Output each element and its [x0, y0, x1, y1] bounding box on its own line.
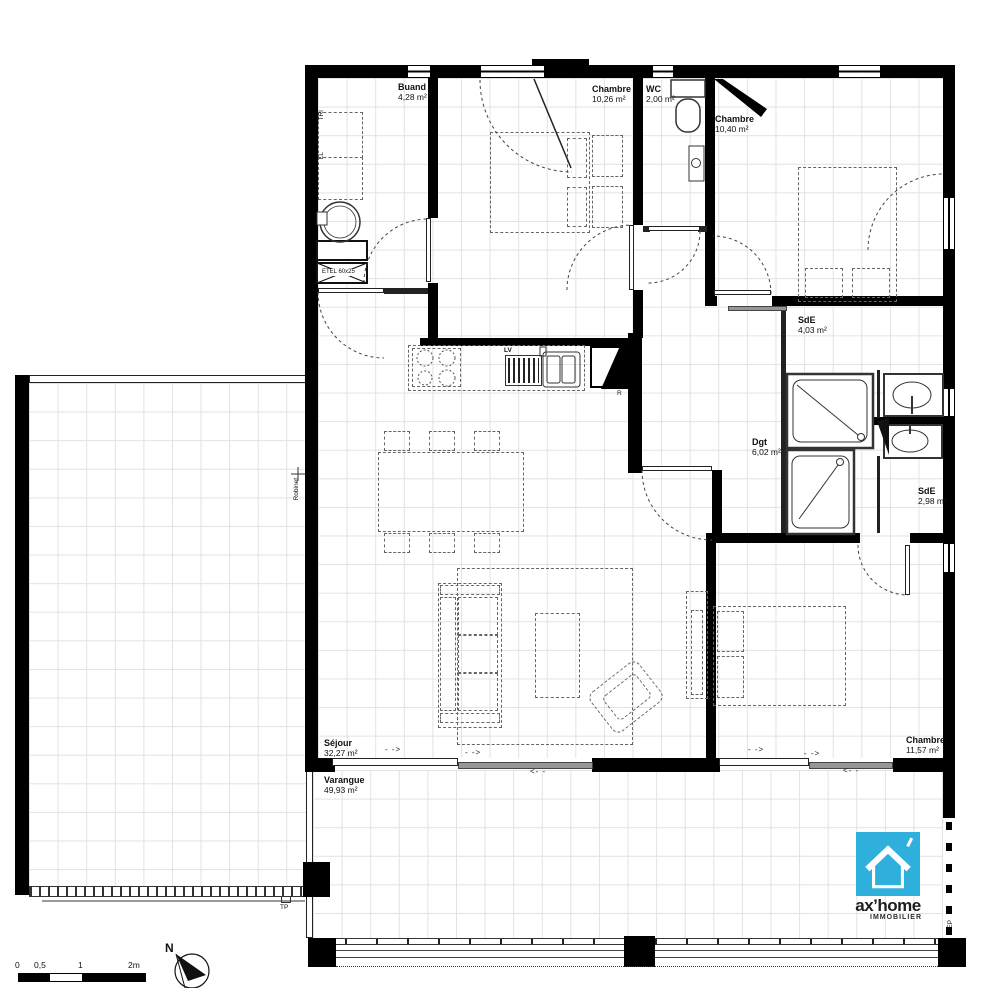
door-arc-wc: [648, 231, 700, 283]
room-area: 4,03 m²: [798, 325, 827, 335]
room-name: Buand: [398, 82, 427, 92]
logo-subtitle: IMMOBILIER: [850, 914, 922, 921]
plan-overlay: [0, 0, 1000, 988]
slide-arrow-sejour-3: <- -: [530, 768, 546, 776]
logo-house-icon: [856, 832, 920, 896]
burner-3: [418, 371, 432, 385]
kitchen-sink-bowl-2: [562, 356, 575, 383]
door-arc-chambre1: [567, 225, 632, 290]
lv-label: LV: [504, 347, 512, 354]
compass-needle: [176, 954, 206, 981]
room-name: Séjour: [324, 738, 358, 748]
slide-arrow-chambre3-1: - ->: [748, 746, 764, 754]
room-area: 6,02 m²: [752, 447, 781, 457]
room-name: WC: [646, 84, 675, 94]
slide-arrow-chambre3-3: <- -: [843, 767, 859, 775]
door-arc-chambre2-window: [868, 174, 944, 250]
door-arc-buand-bottom: [318, 292, 384, 358]
logo-body: [874, 865, 903, 887]
entry-door-leaf: [714, 79, 767, 117]
room-label-wc: WC 2,00 m²: [646, 84, 675, 104]
water-heater-inner: [324, 206, 356, 238]
room-label-chambre3: Chambre 11,57 m²: [906, 735, 945, 755]
french-window-leaf: [534, 79, 571, 168]
shower1-tray: [787, 374, 873, 448]
room-name: Dgt: [752, 437, 781, 447]
slide-arrow-chambre3-2: - ->: [804, 750, 820, 758]
fridge-label: R: [617, 390, 622, 397]
room-name: Varangue: [324, 775, 365, 785]
logo-brand: ax’home: [850, 896, 926, 916]
door-arc-chambre2: [713, 236, 771, 294]
ll-label: LL: [318, 152, 325, 159]
room-area: 11,57 m²: [906, 745, 945, 755]
room-name: Chambre: [715, 114, 754, 124]
room-label-dgt: Dgt 6,02 m²: [752, 437, 781, 457]
logo: [856, 832, 920, 896]
scale-bar-seg-1: [18, 973, 50, 982]
room-label-chambre2: Chambre 10,40 m²: [715, 114, 754, 134]
room-area: 10,26 m²: [592, 94, 631, 104]
slide-arrow-sejour-1: - ->: [385, 746, 401, 754]
kitchen-sink-bowl-1: [547, 356, 560, 383]
room-area: 10,40 m²: [715, 124, 754, 134]
door-arc-chambre3: [858, 545, 908, 595]
scale-tick-2m: 2m: [128, 960, 140, 970]
door-arc-dgt: [642, 470, 712, 540]
scale-tick-1: 1: [78, 960, 83, 970]
scale-tick-05: 0,5: [34, 960, 46, 970]
logo-tick: [908, 838, 912, 846]
room-label-sde1: SdE 4,03 m²: [798, 315, 827, 335]
fridge-corner-wall: [601, 346, 642, 389]
toilet-bowl: [676, 99, 700, 132]
room-area: 2,98 m²: [918, 496, 947, 506]
scale-bar-seg-2: [82, 973, 146, 982]
tri-label: TRI: [318, 110, 325, 120]
burner-4: [439, 370, 455, 386]
room-name: SdE: [798, 315, 827, 325]
room-name: Chambre: [906, 735, 945, 745]
toilet-tank: [671, 80, 705, 97]
room-label-chambre1: Chambre 10,26 m²: [592, 84, 631, 104]
room-label-buand: Buand 4,28 m²: [398, 82, 427, 102]
room-area: 49,93 m²: [324, 785, 365, 795]
burner-2: [439, 350, 455, 366]
room-label-varangue: Varangue 49,93 m²: [324, 775, 365, 795]
room-label-sejour: Séjour 32,27 m²: [324, 738, 358, 758]
burner-1: [417, 350, 433, 366]
room-name: SdE: [918, 486, 947, 496]
floor-plan: TP Robinet EP: [0, 0, 1000, 988]
door-arc-buand: [364, 219, 428, 283]
room-name: Chambre: [592, 84, 631, 94]
etel-label: ETEL 60x25: [321, 269, 356, 276]
scale-tick-0: 0: [15, 960, 20, 970]
room-area: 32,27 m²: [324, 748, 358, 758]
slide-arrow-sejour-2: - ->: [465, 749, 481, 757]
buand-valve: [317, 212, 327, 225]
room-area: 4,28 m²: [398, 92, 427, 102]
room-area: 2,00 m²: [646, 94, 675, 104]
compass-label: N: [165, 941, 174, 955]
door-arc-french-window: [480, 80, 572, 172]
room-label-sde2: SdE 2,98 m²: [918, 486, 947, 506]
